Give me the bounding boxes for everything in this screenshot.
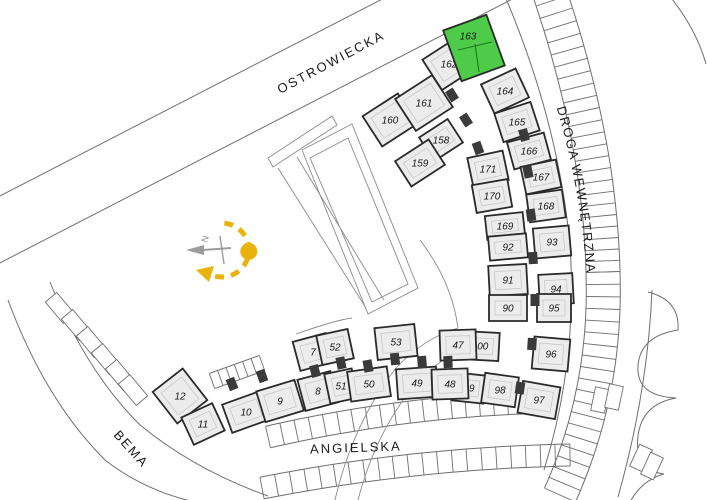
corner-road-arc xyxy=(668,0,706,64)
roads-layer xyxy=(0,0,706,500)
unit-number: 98 xyxy=(494,386,506,397)
unit-number: 161 xyxy=(416,99,433,110)
unit-91[interactable]: 91 xyxy=(488,264,528,296)
unit-90[interactable]: 90 xyxy=(489,295,527,321)
stair-core xyxy=(226,377,239,391)
stair-core xyxy=(459,113,473,128)
unit-number: 169 xyxy=(497,222,514,233)
stair-core xyxy=(443,356,452,368)
compass-arrowhead-icon xyxy=(196,266,214,282)
unit-number: 93 xyxy=(546,238,558,249)
unit-47[interactable]: 47 xyxy=(440,329,477,360)
stair-core xyxy=(515,381,526,394)
unit-93[interactable]: 93 xyxy=(533,226,571,259)
courtyard-lawn xyxy=(302,124,418,314)
unit-number: 160 xyxy=(382,116,399,127)
unit-number: 166 xyxy=(521,147,538,158)
unit-number: 158 xyxy=(433,136,450,147)
unit-number: 95 xyxy=(548,304,560,315)
site-plan-svg: 1601611621581591631641651661711671701681… xyxy=(0,0,707,500)
units-layer: 1601611621581591631641651661711671701681… xyxy=(153,15,574,445)
unit-number: 10 xyxy=(240,408,252,419)
unit-number: 97 xyxy=(533,396,545,407)
building-comb-edge xyxy=(209,356,259,374)
unit-number: 8 xyxy=(315,387,321,398)
north-arrow-shaft xyxy=(203,248,231,250)
north-arrow-crossbar xyxy=(220,236,224,264)
unit-number: 171 xyxy=(480,165,497,176)
unit-95[interactable]: 95 xyxy=(537,294,571,322)
unit-number: 170 xyxy=(484,192,501,203)
parking-stall-east xyxy=(605,384,624,410)
street-ostrowiecka-edge xyxy=(0,0,396,200)
stair-core xyxy=(526,208,537,221)
parking-strip-angielska-lower-edge xyxy=(264,466,570,499)
unit-number: 167 xyxy=(533,173,550,184)
unit-number: 48 xyxy=(444,380,456,391)
unit-number: 91 xyxy=(502,276,513,287)
stair-core xyxy=(531,294,540,306)
street-label-bema: BEMA xyxy=(111,427,152,470)
unit-number: 12 xyxy=(174,392,186,403)
street-label-angielska: ANGIELSKA xyxy=(310,438,402,456)
unit-number: 7 xyxy=(310,348,316,359)
unit-number: 53 xyxy=(390,338,402,349)
stair-core xyxy=(472,141,485,155)
unit-number: 92 xyxy=(502,243,514,254)
unit-number: 96 xyxy=(545,350,557,361)
unit-number: 164 xyxy=(497,87,514,98)
stair-core xyxy=(390,353,400,366)
unit-92[interactable]: 92 xyxy=(488,233,528,260)
unit-number: 49 xyxy=(411,379,423,390)
unit-number: 47 xyxy=(452,341,464,352)
stair-core xyxy=(256,369,269,383)
unit-number: 50 xyxy=(363,380,375,391)
unit-48[interactable]: 48 xyxy=(432,368,469,399)
unit-number: 90 xyxy=(502,304,514,315)
unit-number: 159 xyxy=(412,159,429,170)
stair-core xyxy=(527,338,537,351)
courtyard-path xyxy=(278,168,366,308)
unit-number: 51 xyxy=(335,382,346,393)
compass-dot-icon xyxy=(240,243,257,260)
driveway-curve xyxy=(420,240,458,328)
unit-number: 168 xyxy=(538,202,555,213)
courtyard-slab xyxy=(268,116,337,167)
unit-9[interactable]: 9 xyxy=(256,380,304,422)
stair-core xyxy=(528,252,538,265)
street-label-ostrowiecka: OSTROWIECKA xyxy=(275,27,388,96)
compass: N xyxy=(186,223,257,282)
parking-strip-angielska-lower-edge xyxy=(260,444,570,477)
site-plan: 1601611621581591631641651661711671701681… xyxy=(0,0,707,500)
unit-number: 165 xyxy=(509,118,526,129)
unit-number: 52 xyxy=(329,343,341,354)
north-arrow-icon xyxy=(186,245,204,255)
unit-number: 163 xyxy=(460,32,477,43)
unit-number: 9 xyxy=(277,397,283,408)
unit-170[interactable]: 170 xyxy=(472,179,512,213)
courtyard-lawn-inner xyxy=(310,138,408,302)
unit-number: 11 xyxy=(198,420,208,431)
north-label: N xyxy=(199,234,211,243)
unit-96[interactable]: 96 xyxy=(532,337,571,372)
unit-98[interactable]: 98 xyxy=(481,373,519,407)
unit-52[interactable]: 52 xyxy=(316,329,354,365)
courtyard-path xyxy=(297,157,384,300)
stair-core xyxy=(417,356,427,369)
